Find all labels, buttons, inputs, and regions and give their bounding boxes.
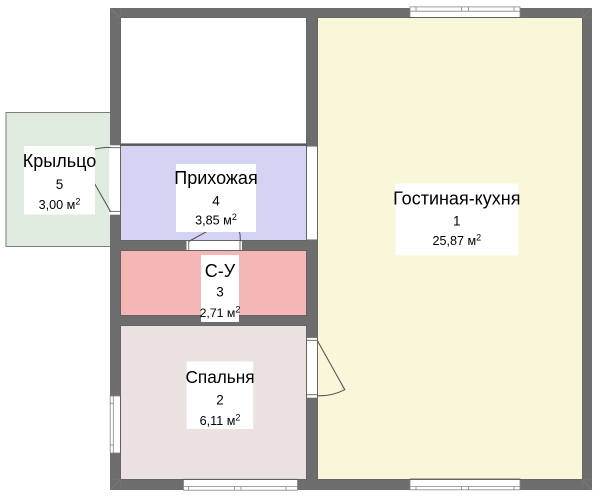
svg-text:Крыльцо: Крыльцо	[23, 151, 96, 171]
svg-text:6,11 м2: 6,11 м2	[200, 413, 241, 429]
svg-text:Гостиная-кухня: Гостиная-кухня	[393, 189, 520, 209]
svg-text:3,00 м2: 3,00 м2	[39, 197, 81, 213]
svg-text:2,71 м2: 2,71 м2	[200, 305, 241, 321]
svg-text:Спальня: Спальня	[185, 367, 254, 387]
svg-text:25,87 м2: 25,87 м2	[432, 233, 481, 249]
svg-text:4: 4	[212, 194, 220, 209]
svg-text:3,85 м2: 3,85 м2	[195, 212, 237, 228]
svg-text:2: 2	[216, 393, 224, 408]
svg-text:3: 3	[216, 285, 224, 300]
svg-text:1: 1	[453, 214, 461, 229]
svg-text:Прихожая: Прихожая	[174, 168, 257, 188]
svg-text:С-У: С-У	[205, 261, 236, 281]
svg-text:5: 5	[56, 177, 64, 192]
